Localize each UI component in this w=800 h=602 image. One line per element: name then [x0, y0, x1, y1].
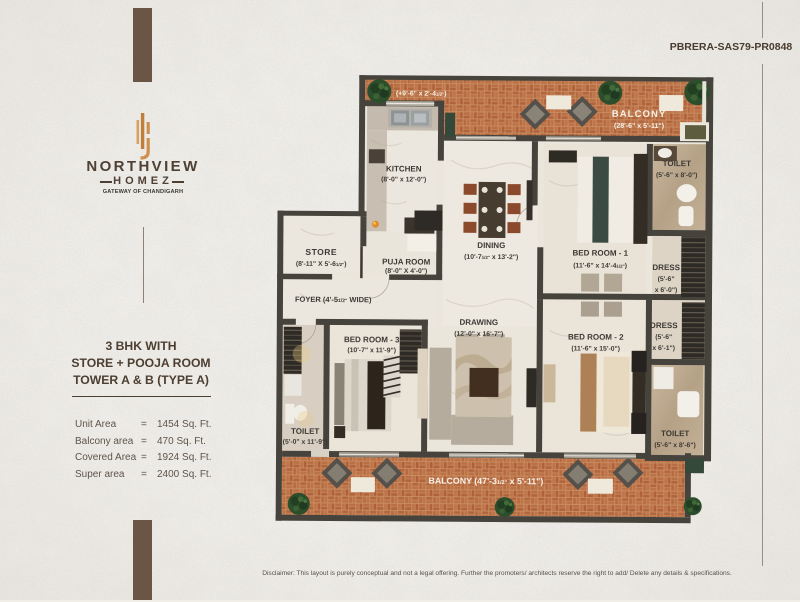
svg-text:DRAWING: DRAWING: [459, 318, 498, 327]
svg-text:(10'-71/2" x 13'-2"): (10'-71/2" x 13'-2"): [464, 254, 518, 261]
svg-text:(11'-6" x 15'-0"): (11'-6" x 15'-0"): [571, 345, 620, 352]
svg-text:x 6'-1"): x 6'-1"): [652, 345, 675, 352]
svg-text:(8'-0" x 12'-0"): (8'-0" x 12'-0"): [381, 176, 426, 183]
svg-text:(8'-0" X 4'-0"): (8'-0" X 4'-0"): [385, 268, 427, 275]
svg-text:(+9'-6" x 2'-41/2"): (+9'-6" x 2'-41/2"): [396, 90, 447, 97]
svg-text:(8'-11" X 5'-61/2"): (8'-11" X 5'-61/2"): [296, 261, 347, 268]
svg-text:(28'-6" x 5'-11"): (28'-6" x 5'-11"): [614, 123, 664, 130]
svg-text:(12'-0" x 16'-7"): (12'-0" x 16'-7"): [454, 331, 503, 338]
svg-text:(11'-6" x 14'-41/2"): (11'-6" x 14'-41/2"): [573, 262, 627, 269]
svg-text:BED ROOM - 3: BED ROOM - 3: [344, 335, 400, 344]
svg-text:(5'-6" x 8'-6"): (5'-6" x 8'-6"): [654, 442, 695, 449]
svg-text:(5'-6" x 8'-0"): (5'-6" x 8'-0"): [656, 172, 697, 179]
svg-text:STORE: STORE: [305, 247, 337, 257]
svg-text:BED ROOM - 1: BED ROOM - 1: [572, 248, 628, 257]
svg-text:(10'-7" x 11'-9"): (10'-7" x 11'-9"): [347, 347, 396, 354]
svg-text:TOILET: TOILET: [291, 427, 319, 436]
svg-text:(5'-0" x 11'-9"): (5'-0" x 11'-9"): [283, 439, 328, 446]
svg-text:FOYER (4'-51/2" WIDE): FOYER (4'-51/2" WIDE): [295, 295, 372, 304]
svg-text:(5'-6": (5'-6": [658, 276, 675, 283]
svg-text:(5'-6": (5'-6": [655, 334, 672, 341]
svg-text:KITCHEN: KITCHEN: [386, 164, 422, 173]
svg-text:DINING: DINING: [477, 241, 505, 250]
svg-text:DRESS: DRESS: [652, 263, 680, 272]
svg-text:PUJA ROOM: PUJA ROOM: [382, 257, 431, 266]
svg-text:x 6'-0"): x 6'-0"): [655, 287, 678, 294]
svg-text:BALCONY: BALCONY: [612, 109, 667, 120]
svg-text:BALCONY (47'-31/2" x 5'-11"): BALCONY (47'-31/2" x 5'-11"): [428, 476, 543, 487]
svg-text:DRESS: DRESS: [650, 321, 678, 330]
svg-text:BED ROOM - 2: BED ROOM - 2: [568, 332, 624, 341]
svg-text:TOILET: TOILET: [661, 429, 689, 438]
svg-text:TOILET: TOILET: [663, 159, 691, 168]
